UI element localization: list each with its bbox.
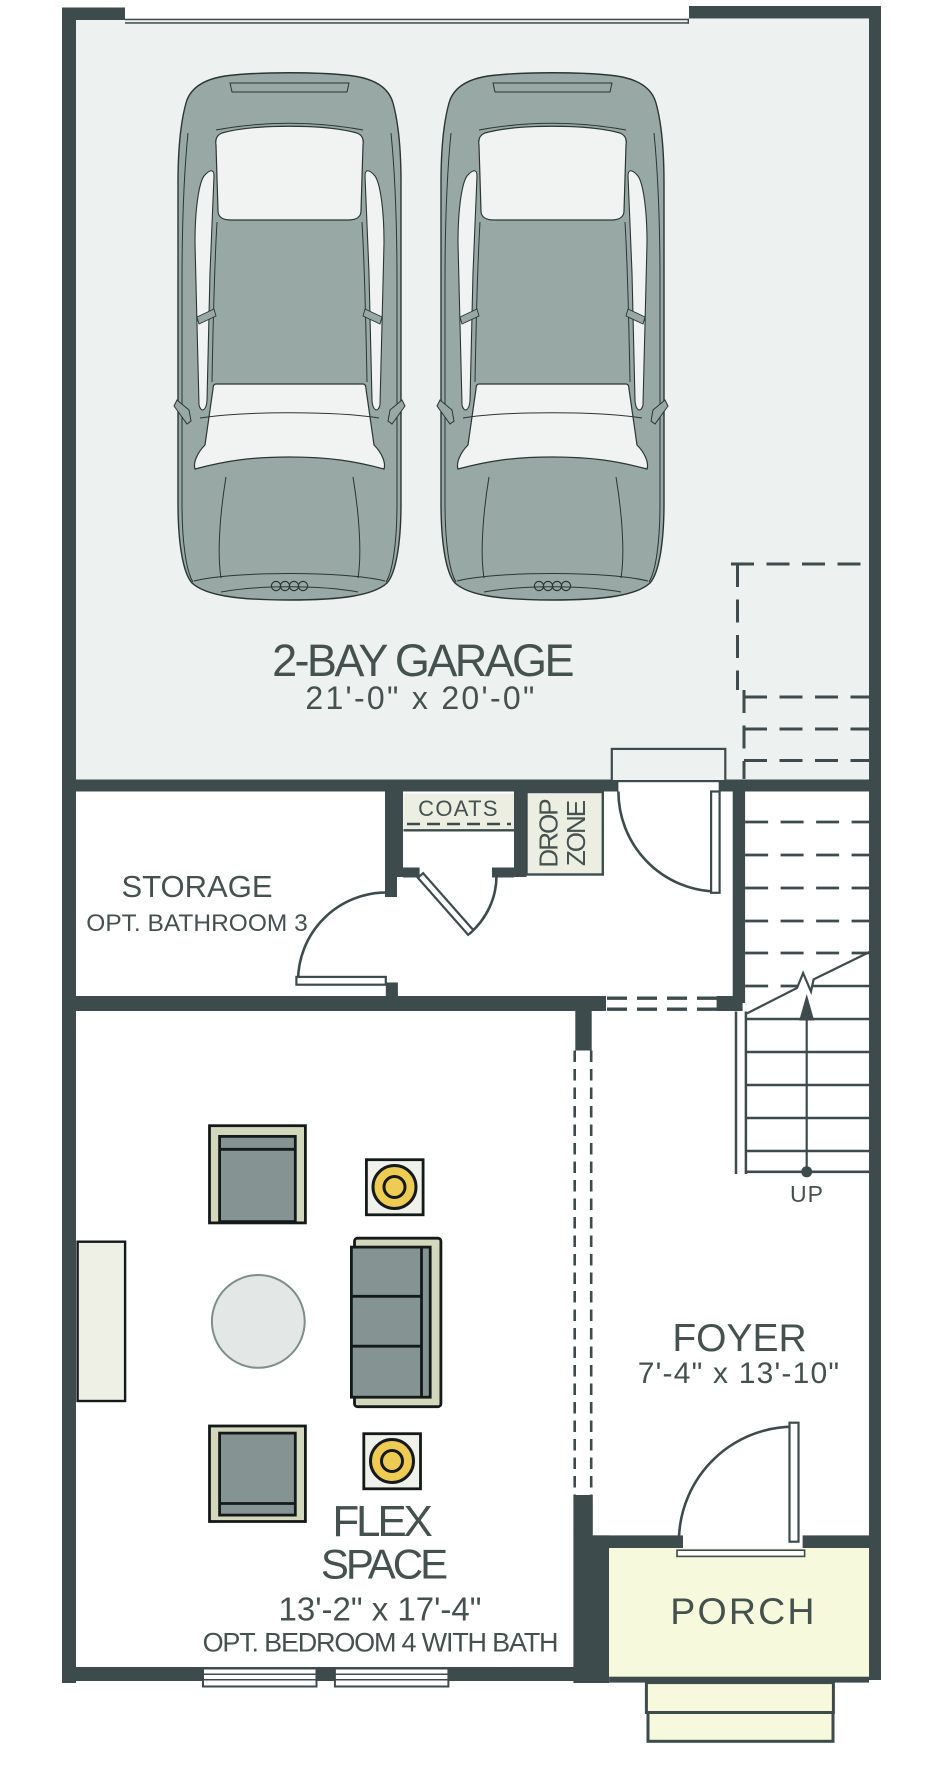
- svg-text:COATS: COATS: [418, 796, 499, 821]
- svg-text:FLEX: FLEX: [332, 1497, 432, 1546]
- svg-text:STORAGE: STORAGE: [121, 869, 272, 904]
- svg-text:13'-2" x 17'-4": 13'-2" x 17'-4": [279, 1591, 482, 1628]
- svg-text:UP: UP: [790, 1181, 824, 1207]
- svg-text:FOYER: FOYER: [672, 1317, 806, 1360]
- svg-text:21'-0" x 20'-0": 21'-0" x 20'-0": [305, 680, 536, 716]
- svg-text:OPT. BATHROOM 3: OPT. BATHROOM 3: [86, 910, 307, 937]
- svg-text:DROP: DROP: [534, 800, 564, 868]
- svg-text:PORCH: PORCH: [670, 1590, 816, 1632]
- svg-text:ZONE: ZONE: [561, 800, 591, 866]
- svg-text:7'-4" x 13'-10": 7'-4" x 13'-10": [638, 1357, 841, 1390]
- svg-text:OPT. BEDROOM 4 WITH BATH: OPT. BEDROOM 4 WITH BATH: [203, 1628, 558, 1658]
- svg-text:SPACE: SPACE: [321, 1541, 447, 1588]
- svg-text:2-BAY GARAGE: 2-BAY GARAGE: [272, 635, 573, 686]
